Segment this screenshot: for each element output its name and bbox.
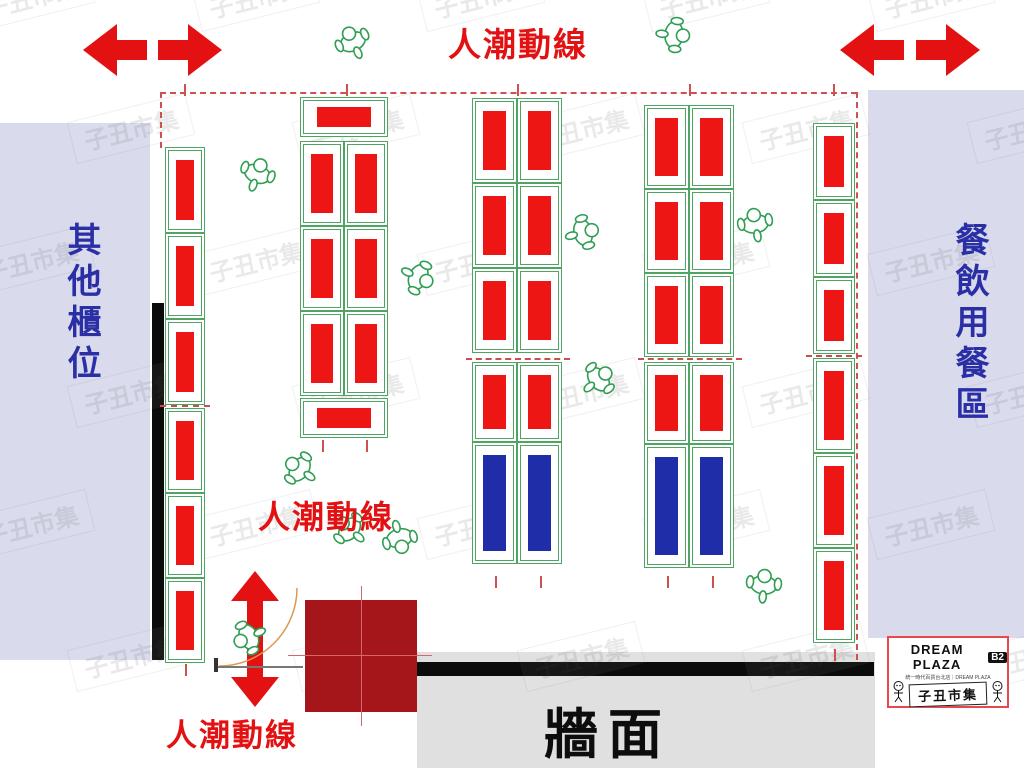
arrow-right-top-left <box>158 24 222 76</box>
mascot-left-icon <box>892 681 905 703</box>
left-zone-label: 其他櫃位 <box>56 222 105 386</box>
arrow-left-top-left <box>83 24 147 76</box>
logo-market-name: 子丑市集 <box>909 682 988 708</box>
flow-label-bottom: 人潮動線 <box>166 710 298 755</box>
logo-floor-badge: B2 <box>988 652 1007 663</box>
floor-plan-canvas: 子丑市集子丑市集子丑市集子丑市集子丑市集子丑市集子丑市集子丑市集子丑市集子丑市集… <box>0 0 1024 768</box>
mascot-right-icon <box>991 681 1004 703</box>
overlay-graphics <box>0 0 1024 768</box>
logo-title: DREAM PLAZA <box>889 642 985 672</box>
arrow-right-top-right <box>916 24 980 76</box>
wall-label: 牆面 <box>544 690 672 768</box>
right-zone-label: 餐飲用餐區 <box>944 222 993 427</box>
logo-subtitle: 統一時代百貨台北店｜DREAM PLAZA <box>889 674 1007 681</box>
people-figures <box>227 16 782 660</box>
flow-label-top: 人潮動線 <box>448 18 588 66</box>
flow-label-mid: 人潮動線 <box>258 492 394 538</box>
brand-logo: DREAM PLAZA B2 統一時代百貨台北店｜DREAM PLAZA 子丑市… <box>887 636 1009 708</box>
arrow-left-top-right <box>840 24 904 76</box>
